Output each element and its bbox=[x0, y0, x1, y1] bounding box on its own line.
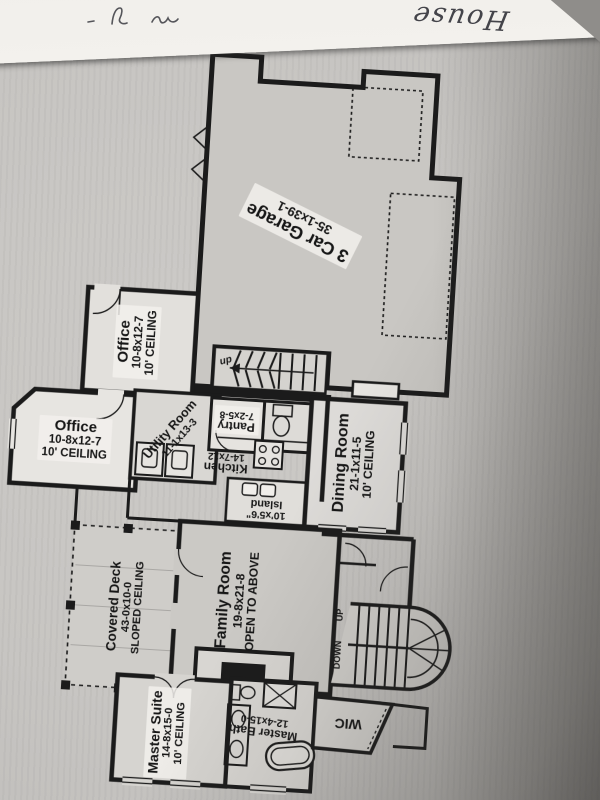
master-label: Master Suite 14-8x15-0 10' CEILING bbox=[143, 686, 191, 780]
kitchen-label: Kitchen 14-7x12 bbox=[203, 449, 248, 475]
island-label: 10'x5'6" Island bbox=[246, 496, 287, 522]
garage-door-step bbox=[352, 381, 399, 399]
stair-text: UP bbox=[336, 609, 346, 622]
island-sink-icon bbox=[242, 483, 258, 496]
curved-stair bbox=[331, 603, 453, 692]
handwriting-partial-scribble bbox=[60, 0, 280, 40]
room-dims: 7-2x5-8 bbox=[218, 407, 256, 420]
floor-plan: 3 Car Garage 35-1x39-1 Office 10-8x12-7 … bbox=[0, 0, 600, 800]
tub-icon bbox=[265, 740, 315, 771]
room-ceiling: 10' CEILING bbox=[172, 692, 189, 776]
dining-label: Dining Room 21-1x11-5 10' CEILING bbox=[330, 413, 379, 515]
deck-label: Covered Deck 43-0x10-0 SLOPED CEILING bbox=[104, 559, 148, 654]
stair-up-label: UP bbox=[336, 609, 346, 622]
floor-plan-drawing bbox=[0, 0, 600, 800]
room-name: Island bbox=[247, 496, 287, 510]
stair-down-label: DOWN bbox=[333, 640, 344, 669]
deck-post bbox=[71, 520, 81, 530]
range-icon bbox=[254, 441, 284, 470]
office-left-label: Office 10-8x12-7 10' CEILING bbox=[37, 415, 113, 464]
room-name: WIC bbox=[334, 715, 362, 732]
pantry-label: Pantry 7-2x5-8 bbox=[213, 405, 260, 435]
wic-label: WIC bbox=[334, 715, 362, 732]
side-room-walls bbox=[390, 704, 427, 748]
photo-of-floor-plan: 3 Car Garage 35-1x39-1 Office 10-8x12-7 … bbox=[0, 0, 600, 800]
door-arc bbox=[380, 565, 408, 593]
office-upper-label: Office 10-8x12-7 10' CEILING bbox=[112, 304, 161, 380]
room-dims: 14-7x12 bbox=[204, 449, 249, 462]
family-label: Family Room 19-8x21-8 OPEN TO ABOVE bbox=[213, 550, 262, 652]
stair-text: DOWN bbox=[333, 640, 344, 669]
